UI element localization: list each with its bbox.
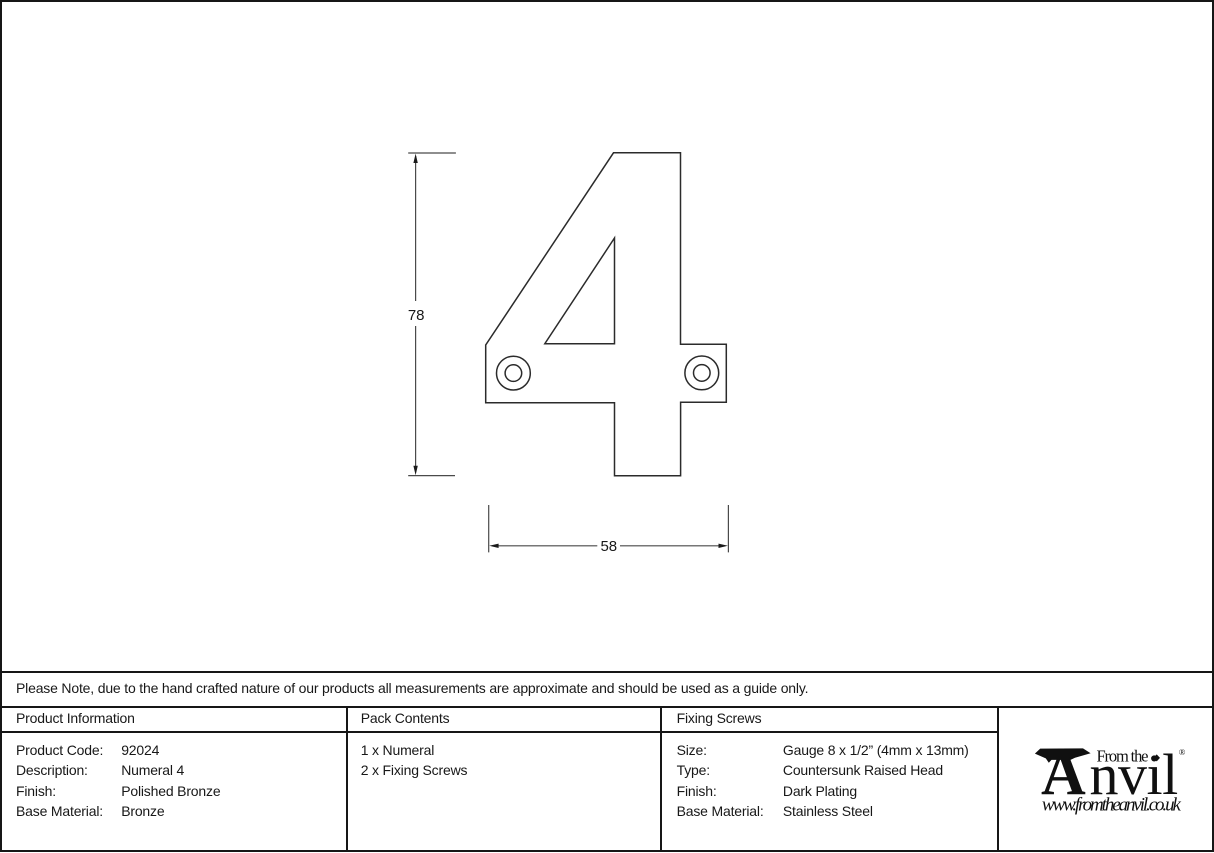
svg-text:www.fromtheanvil.co.uk: www.fromtheanvil.co.uk xyxy=(1042,795,1182,816)
svg-text:58: 58 xyxy=(600,538,617,555)
svg-text:®: ® xyxy=(1179,747,1186,757)
svg-text:78: 78 xyxy=(408,307,425,324)
svg-text:From the: From the xyxy=(1097,746,1149,765)
